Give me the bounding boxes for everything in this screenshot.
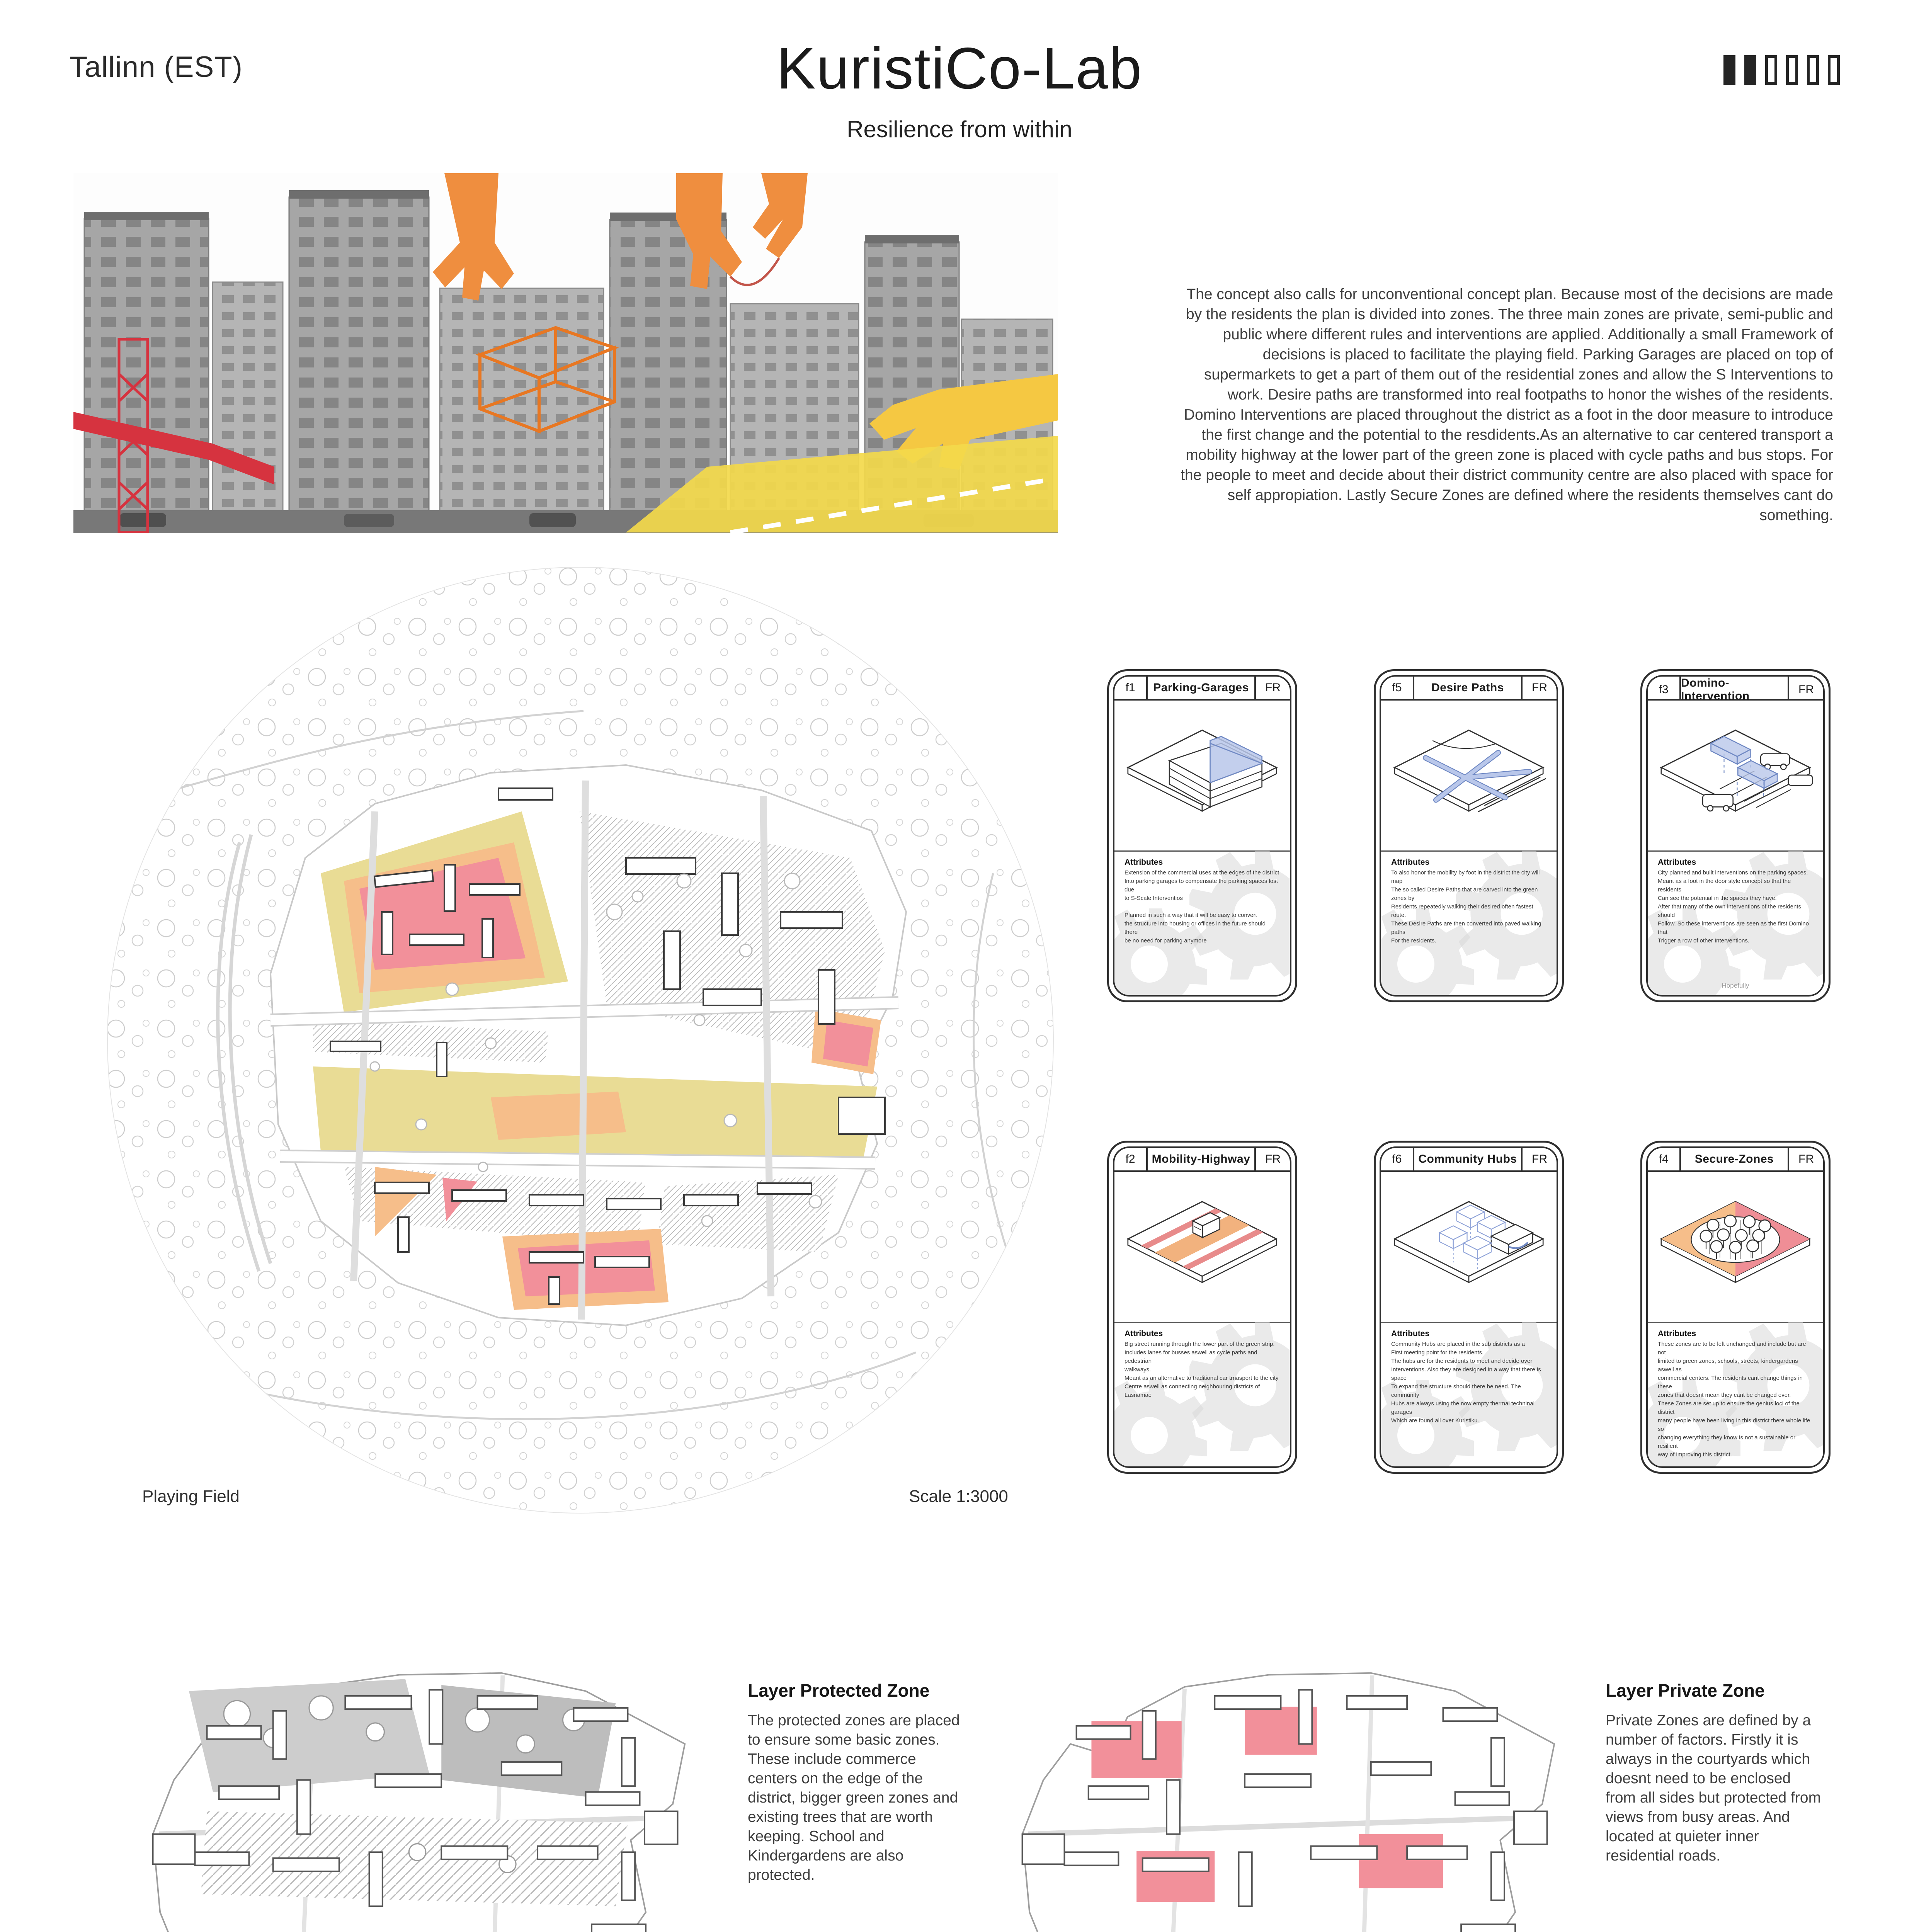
card-title: Community Hubs bbox=[1414, 1148, 1521, 1170]
layer-title: Layer Protected Zone bbox=[748, 1680, 966, 1701]
card-frame: f6Community HubsFR AttributesCommunity H… bbox=[1380, 1146, 1558, 1468]
progress-square bbox=[1807, 55, 1819, 85]
card-illustration bbox=[1114, 701, 1290, 852]
page-subtitle: Resilience from within bbox=[0, 116, 1919, 143]
layer-description: Private Zones are defined by a number of… bbox=[1606, 1711, 1824, 1866]
framework-card-f3: f3Domino-InterventionFR bbox=[1640, 669, 1831, 1002]
framework-card-f6: f6Community HubsFR AttributesCommunity H… bbox=[1374, 1141, 1564, 1474]
card-title: Mobility-Highway bbox=[1148, 1148, 1254, 1170]
layer-title: Layer Private Zone bbox=[1606, 1680, 1824, 1701]
card-iso-diagram bbox=[1384, 1172, 1553, 1321]
progress-square bbox=[1744, 55, 1756, 85]
layer-block-private: Layer Private Zone Private Zones are def… bbox=[1606, 1680, 1824, 1866]
card-frame: f1Parking-GaragesFR AttributesExtension … bbox=[1113, 675, 1291, 997]
layer-map-protected bbox=[116, 1654, 719, 1932]
poster: Tallinn (EST) KuristiCo-Lab Resilience f… bbox=[0, 0, 1919, 1932]
card-code: f2 bbox=[1114, 1148, 1148, 1170]
card-iso-diagram bbox=[1118, 1172, 1287, 1321]
layer-description: The protected zones are placed to ensure… bbox=[748, 1711, 966, 1885]
card-frame: f2Mobility-HighwayFR AttributesBig stree… bbox=[1113, 1146, 1291, 1468]
card-title: Domino-Intervention bbox=[1681, 677, 1788, 703]
attributes-text: These zones are to be left unchanged and… bbox=[1658, 1340, 1813, 1459]
card-frame: f5Desire PathsFR AttributesTo also honor… bbox=[1380, 675, 1558, 997]
card-code: f6 bbox=[1381, 1148, 1414, 1170]
progress-square bbox=[1786, 55, 1798, 85]
playing-field-scale: Scale 1:3000 bbox=[909, 1487, 1008, 1506]
framework-card-f1: f1Parking-GaragesFR AttributesExtension … bbox=[1107, 669, 1297, 1002]
card-illustration bbox=[1648, 701, 1823, 852]
card-illustration bbox=[1648, 1172, 1823, 1323]
layer-map-private bbox=[985, 1654, 1588, 1932]
card-side-label: FR bbox=[1521, 1148, 1557, 1170]
attributes-heading: Attributes bbox=[1125, 1329, 1280, 1338]
playing-field-label: Playing Field bbox=[142, 1487, 240, 1506]
masterplan-map bbox=[104, 564, 1057, 1517]
progress-square bbox=[1765, 55, 1777, 85]
card-side-label: FR bbox=[1788, 1148, 1823, 1170]
card-attributes: AttributesBig street running through the… bbox=[1114, 1323, 1290, 1400]
attributes-heading: Attributes bbox=[1391, 1329, 1546, 1338]
page-title: KuristiCo-Lab bbox=[0, 35, 1919, 102]
card-iso-diagram bbox=[1651, 1172, 1820, 1321]
progress-square bbox=[1723, 55, 1735, 85]
card-title: Desire Paths bbox=[1414, 677, 1521, 699]
card-attributes: AttributesTo also honor the mobility by … bbox=[1381, 852, 1557, 945]
card-footnote: Hopefully bbox=[1648, 982, 1823, 990]
attributes-heading: Attributes bbox=[1391, 858, 1546, 867]
framework-card-f5: f5Desire PathsFR AttributesTo also honor… bbox=[1374, 669, 1564, 1002]
attributes-text: To also honor the mobility by foot in th… bbox=[1391, 869, 1546, 945]
progress-square bbox=[1828, 55, 1840, 85]
attributes-heading: Attributes bbox=[1658, 1329, 1813, 1338]
attributes-text: City planned and built interventions on … bbox=[1658, 869, 1813, 945]
card-iso-diagram bbox=[1651, 701, 1820, 850]
card-illustration bbox=[1114, 1172, 1290, 1323]
layer-block-protected: Layer Protected Zone The protected zones… bbox=[748, 1680, 966, 1885]
attributes-heading: Attributes bbox=[1658, 858, 1813, 867]
attributes-heading: Attributes bbox=[1125, 858, 1280, 867]
card-attributes: AttributesCommunity Hubs are placed in t… bbox=[1381, 1323, 1557, 1425]
card-side-label: FR bbox=[1254, 1148, 1290, 1170]
card-code: f4 bbox=[1648, 1148, 1681, 1170]
card-side-label: FR bbox=[1254, 677, 1290, 699]
card-illustration bbox=[1381, 1172, 1557, 1323]
framework-card-f2: f2Mobility-HighwayFR AttributesBig stree… bbox=[1107, 1141, 1297, 1474]
sheet-progress-indicator bbox=[1723, 55, 1840, 85]
card-side-label: FR bbox=[1788, 677, 1823, 703]
card-title: Parking-Garages bbox=[1148, 677, 1254, 699]
attributes-text: Community Hubs are placed in the sub dis… bbox=[1391, 1340, 1546, 1425]
card-code: f5 bbox=[1381, 677, 1414, 699]
card-code: f1 bbox=[1114, 677, 1148, 699]
card-title: Secure-Zones bbox=[1681, 1148, 1788, 1170]
intro-paragraph: The concept also calls for unconventiona… bbox=[1176, 284, 1833, 526]
card-attributes: AttributesCity planned and built interve… bbox=[1648, 852, 1823, 945]
card-iso-diagram bbox=[1118, 701, 1287, 850]
framework-card-f4: f4Secure-ZonesFR AttributesThese zon bbox=[1640, 1141, 1831, 1474]
card-code: f3 bbox=[1648, 677, 1681, 703]
card-iso-diagram bbox=[1384, 701, 1553, 850]
card-attributes: AttributesThese zones are to be left unc… bbox=[1648, 1323, 1823, 1459]
card-frame: f3Domino-InterventionFR bbox=[1646, 675, 1825, 997]
card-frame: f4Secure-ZonesFR AttributesThese zon bbox=[1646, 1146, 1825, 1468]
card-illustration bbox=[1381, 701, 1557, 852]
attributes-text: Big street running through the lower par… bbox=[1125, 1340, 1280, 1400]
attributes-text: Extension of the commercial uses at the … bbox=[1125, 869, 1280, 945]
card-side-label: FR bbox=[1521, 677, 1557, 699]
photo-collage bbox=[73, 173, 1058, 533]
card-attributes: AttributesExtension of the commercial us… bbox=[1114, 852, 1290, 945]
